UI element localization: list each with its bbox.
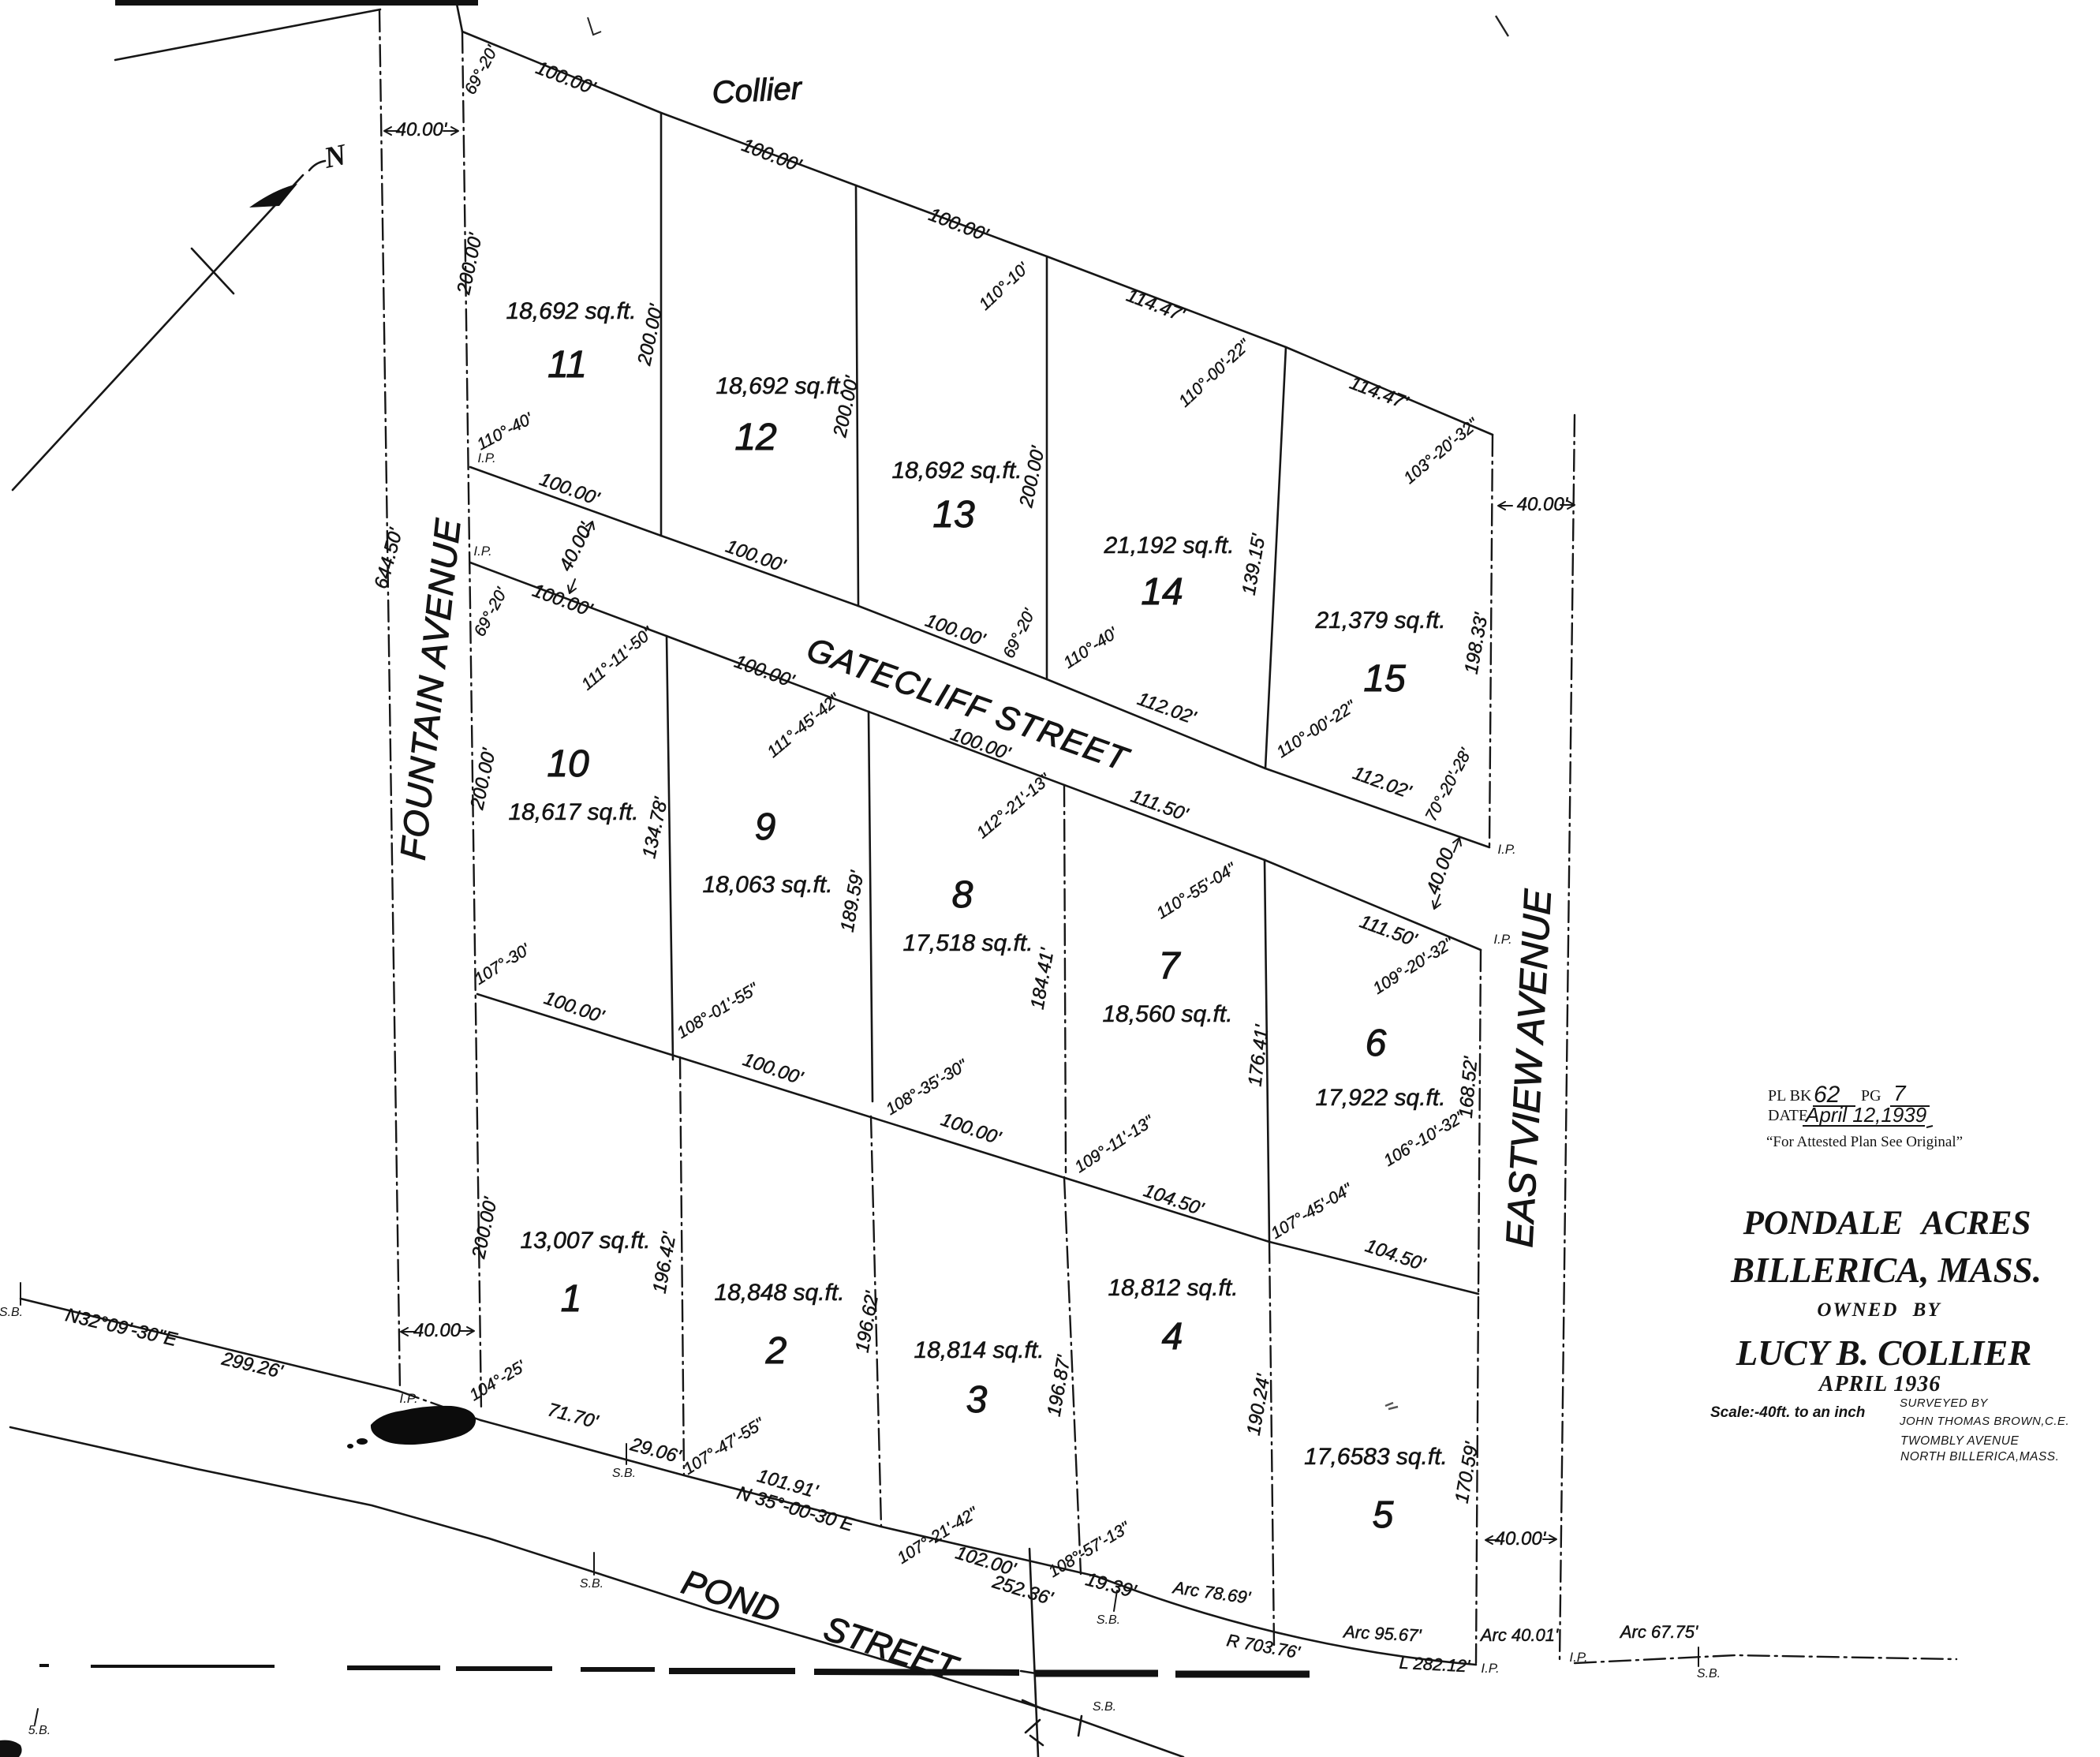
svg-text:Scale:-40ft. to an inch: Scale:-40ft. to an inch bbox=[1710, 1404, 1865, 1421]
svg-text:SURVEYED BY: SURVEYED BY bbox=[1900, 1396, 1988, 1410]
svg-text:L 282.12': L 282.12' bbox=[1399, 1653, 1470, 1677]
svg-text:18,692 sq.ft.: 18,692 sq.ft. bbox=[506, 298, 636, 324]
svg-text:1: 1 bbox=[561, 1278, 582, 1320]
svg-text:3: 3 bbox=[966, 1379, 988, 1421]
svg-text:7: 7 bbox=[1159, 945, 1182, 987]
svg-text:PG: PG bbox=[1861, 1087, 1881, 1105]
svg-text:17,518 sq.ft.: 17,518 sq.ft. bbox=[902, 930, 1033, 956]
svg-text:7: 7 bbox=[1893, 1081, 1907, 1105]
svg-text:I.P.: I.P. bbox=[1481, 1661, 1499, 1676]
svg-text:18,692 sq.ft.: 18,692 sq.ft. bbox=[891, 458, 1022, 484]
svg-text:17,922 sq.ft.: 17,922 sq.ft. bbox=[1315, 1085, 1445, 1111]
svg-text:21,192 sq.ft.: 21,192 sq.ft. bbox=[1103, 533, 1234, 559]
svg-text:18,814 sq.ft.: 18,814 sq.ft. bbox=[914, 1337, 1044, 1363]
svg-text:PL BK: PL BK bbox=[1768, 1087, 1812, 1105]
svg-text:12: 12 bbox=[734, 417, 776, 458]
svg-text:18,560 sq.ft.: 18,560 sq.ft. bbox=[1102, 1001, 1232, 1027]
svg-text:DATE: DATE bbox=[1768, 1107, 1808, 1124]
svg-text:S.B.: S.B. bbox=[612, 1467, 636, 1480]
svg-text:18,063 sq.ft.: 18,063 sq.ft. bbox=[702, 872, 832, 898]
svg-text:I.P.: I.P. bbox=[399, 1391, 417, 1406]
svg-text:I.P.: I.P. bbox=[1497, 842, 1515, 857]
svg-text:Collier: Collier bbox=[712, 71, 804, 110]
svg-text:NORTH BILLERICA,MASS.: NORTH BILLERICA,MASS. bbox=[1900, 1450, 2059, 1464]
svg-text:S.B.: S.B. bbox=[1093, 1700, 1116, 1714]
svg-text:14: 14 bbox=[1141, 571, 1183, 613]
svg-text:8: 8 bbox=[952, 874, 973, 916]
svg-text:4: 4 bbox=[1162, 1316, 1183, 1358]
svg-text:15: 15 bbox=[1363, 658, 1406, 700]
svg-text:S.B.: S.B. bbox=[1097, 1613, 1120, 1627]
svg-text:11: 11 bbox=[547, 344, 587, 386]
svg-text:OWNED BY: OWNED BY bbox=[1817, 1299, 1941, 1321]
svg-text:S.B.: S.B. bbox=[580, 1577, 603, 1591]
svg-text:5: 5 bbox=[1373, 1494, 1394, 1536]
svg-text:13: 13 bbox=[932, 494, 975, 536]
svg-text:JOHN THOMAS BROWN,C.E.: JOHN THOMAS BROWN,C.E. bbox=[1899, 1415, 2069, 1428]
svg-text:Arc 95.67': Arc 95.67' bbox=[1342, 1621, 1422, 1645]
svg-text:S.B.: S.B. bbox=[1697, 1667, 1721, 1680]
svg-text:40.00': 40.00' bbox=[1495, 1528, 1547, 1550]
svg-text:40.00': 40.00' bbox=[1517, 494, 1569, 515]
svg-text:PONDALE ACRES: PONDALE ACRES bbox=[1743, 1205, 2031, 1242]
svg-text:April 12,1939: April 12,1939 bbox=[1804, 1103, 1926, 1127]
svg-text:18,617 sq.ft.: 18,617 sq.ft. bbox=[508, 799, 638, 825]
svg-text:17,6583 sq.ft.: 17,6583 sq.ft. bbox=[1304, 1444, 1448, 1470]
svg-text:5.B.: 5.B. bbox=[28, 1724, 50, 1737]
svg-text:18,692 sq.ft.: 18,692 sq.ft. bbox=[716, 373, 846, 399]
svg-text:21,379 sq.ft.: 21,379 sq.ft. bbox=[1314, 607, 1445, 634]
svg-text:40.00': 40.00' bbox=[396, 119, 448, 140]
svg-text:S.B.: S.B. bbox=[0, 1306, 23, 1319]
svg-text:Arc 67.75': Arc 67.75' bbox=[1619, 1622, 1698, 1642]
svg-text:BILLERICA, MASS.: BILLERICA, MASS. bbox=[1730, 1250, 2042, 1290]
svg-text:10: 10 bbox=[547, 743, 589, 785]
svg-text:18,812 sq.ft.: 18,812 sq.ft. bbox=[1108, 1275, 1238, 1301]
svg-text:APRIL 1936: APRIL 1936 bbox=[1818, 1372, 1941, 1396]
svg-text:LUCY B. COLLIER: LUCY B. COLLIER bbox=[1736, 1333, 2032, 1373]
svg-text:I.P.: I.P. bbox=[1569, 1650, 1587, 1665]
svg-text:I.P.: I.P. bbox=[473, 544, 491, 559]
svg-text:I.P.: I.P. bbox=[1493, 932, 1511, 947]
svg-text:18,848 sq.ft.: 18,848 sq.ft. bbox=[714, 1280, 844, 1306]
svg-text:Arc 40.01': Arc 40.01' bbox=[1479, 1625, 1559, 1645]
svg-text:“For Attested Plan See Origina: “For Attested Plan See Original” bbox=[1766, 1134, 1963, 1150]
svg-text:40.00: 40.00 bbox=[413, 1320, 461, 1341]
svg-text:13,007 sq.ft.: 13,007 sq.ft. bbox=[520, 1228, 650, 1254]
svg-text:2: 2 bbox=[765, 1330, 787, 1372]
svg-text:TWOMBLY AVENUE: TWOMBLY AVENUE bbox=[1900, 1434, 2019, 1448]
svg-text:6: 6 bbox=[1366, 1022, 1387, 1064]
svg-text:I.P.: I.P. bbox=[477, 450, 495, 465]
svg-text:9: 9 bbox=[755, 806, 776, 848]
